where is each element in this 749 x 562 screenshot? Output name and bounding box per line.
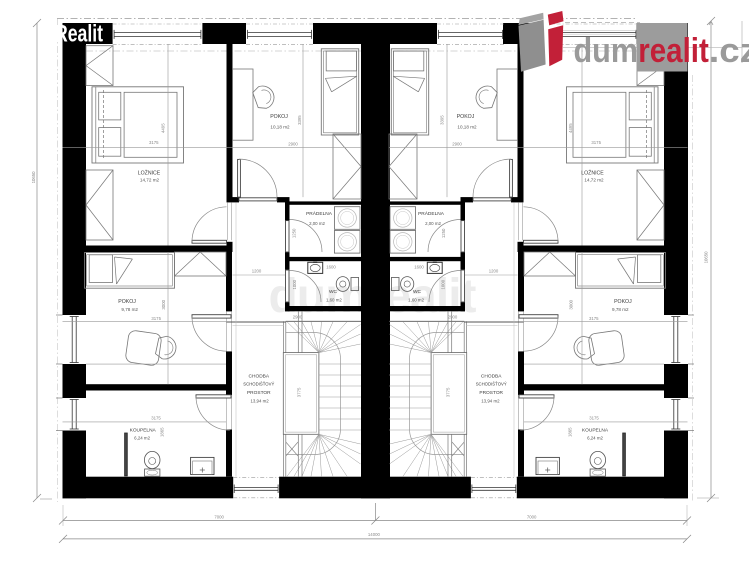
svg-text:PROSTOR: PROSTOR [479,390,503,396]
svg-text:3175: 3175 [589,316,599,321]
svg-text:realit: realit [638,32,709,70]
svg-text:POKOJ: POKOJ [118,299,136,305]
svg-text:KOUPELNA: KOUPELNA [130,428,157,434]
svg-text:PRÁDELNA: PRÁDELNA [306,210,333,217]
svg-text:CHODBA: CHODBA [249,373,270,379]
svg-text:14,72 m2: 14,72 m2 [140,177,160,182]
svg-text:3395: 3395 [440,115,445,125]
svg-text:CHODBA: CHODBA [481,373,502,379]
svg-text:dum: dum [574,32,639,70]
svg-text:10650: 10650 [31,171,36,184]
svg-text:3175: 3175 [591,140,601,145]
svg-text:PROSTOR: PROSTOR [247,390,271,396]
svg-text:1250: 1250 [292,228,297,238]
svg-text:1000: 1000 [441,279,446,289]
svg-text:13,94 m2: 13,94 m2 [481,399,500,404]
svg-text:1600: 1600 [414,265,424,270]
svg-text:3000: 3000 [569,299,574,309]
svg-text:1200: 1200 [489,268,499,273]
svg-text:10650: 10650 [703,251,708,264]
svg-text:13,94 m2: 13,94 m2 [250,399,269,404]
svg-text:LOŽNICE: LOŽNICE [581,168,604,176]
svg-text:2900: 2900 [288,142,298,147]
svg-text:1865: 1865 [159,427,164,437]
svg-text:WC: WC [329,289,338,295]
svg-text:.cz: .cz [709,32,749,70]
svg-text:10,18 m2: 10,18 m2 [270,124,290,129]
svg-text:1600: 1600 [326,265,336,270]
svg-text:3175: 3175 [589,415,599,420]
svg-text:WC: WC [413,289,422,295]
svg-text:3775: 3775 [445,387,450,397]
svg-text:9,78 m2: 9,78 m2 [612,307,629,312]
svg-text:2900: 2900 [448,314,458,319]
svg-text:2900: 2900 [293,314,303,319]
svg-text:10,18 m2: 10,18 m2 [457,124,477,129]
svg-text:3775: 3775 [297,387,302,397]
svg-text:1,60 m2: 1,60 m2 [326,298,342,303]
svg-text:4495: 4495 [161,123,166,133]
svg-text:1865: 1865 [567,427,572,437]
svg-text:KOUPELNA: KOUPELNA [582,428,609,434]
svg-text:POKOJ: POKOJ [270,114,288,120]
svg-text:7000: 7000 [214,514,224,519]
svg-text:1000: 1000 [292,279,297,289]
svg-text:2,00 m2: 2,00 m2 [309,221,325,226]
svg-text:9,78 m2: 9,78 m2 [121,307,138,312]
svg-text:1,60 m2: 1,60 m2 [408,298,424,303]
svg-text:POKOJ: POKOJ [457,114,475,120]
svg-text:PRÁDELNA: PRÁDELNA [418,210,445,217]
svg-text:2,00 m2: 2,00 m2 [425,221,441,226]
svg-text:6,24 m2: 6,24 m2 [134,435,150,440]
svg-text:LOŽNICE: LOŽNICE [138,168,161,176]
svg-text:3175: 3175 [149,140,159,145]
svg-text:2900: 2900 [452,142,462,147]
svg-text:14000: 14000 [368,532,381,537]
svg-text:4495: 4495 [568,123,573,133]
svg-text:POKOJ: POKOJ [614,299,632,305]
svg-text:3000: 3000 [161,299,166,309]
svg-text:14,72 m2: 14,72 m2 [584,177,604,182]
svg-text:Realit: Realit [55,20,103,47]
svg-text:7000: 7000 [527,514,537,519]
svg-text:6,24 m2: 6,24 m2 [587,435,603,440]
svg-text:3175: 3175 [151,316,161,321]
svg-text:3395: 3395 [297,115,302,125]
svg-text:1200: 1200 [252,268,262,273]
svg-text:3175: 3175 [151,415,161,420]
svg-text:1250: 1250 [441,228,446,238]
